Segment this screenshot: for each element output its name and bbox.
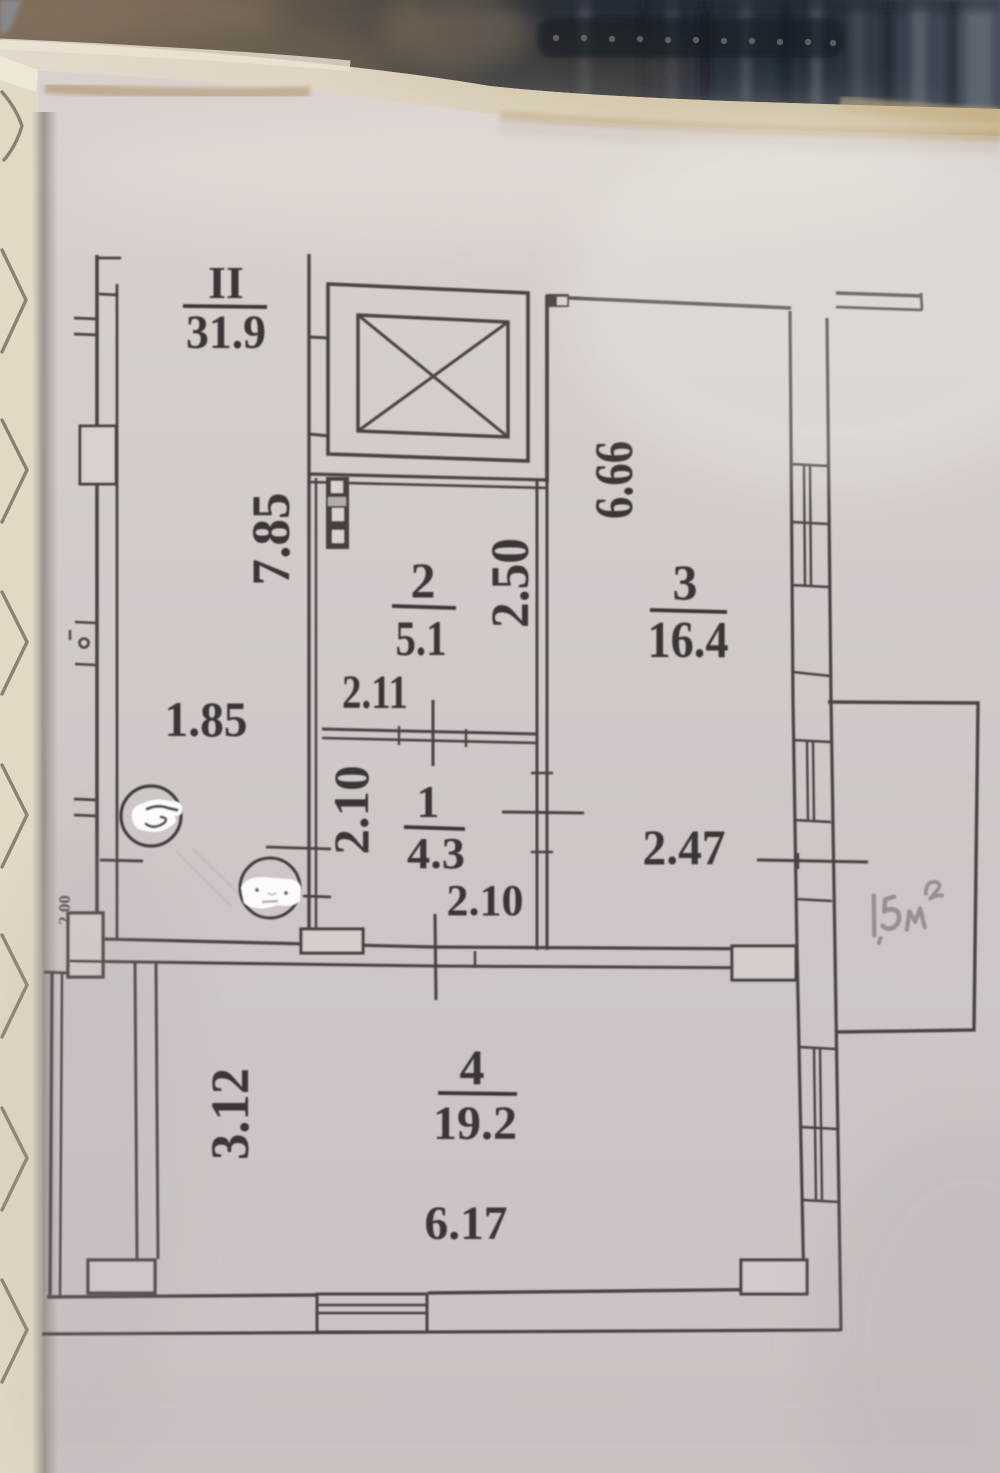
svg-text:2: 2 bbox=[411, 552, 436, 608]
svg-text:16.4: 16.4 bbox=[648, 612, 729, 669]
svg-text:31.9: 31.9 bbox=[186, 306, 266, 359]
svg-text:6.66: 6.66 bbox=[584, 441, 644, 519]
svg-text:3.12: 3.12 bbox=[200, 1068, 260, 1160]
svg-text:1: 1 bbox=[417, 776, 440, 827]
svg-text:6.17: 6.17 bbox=[425, 1197, 508, 1250]
svg-text:5.1: 5.1 bbox=[396, 610, 447, 666]
svg-text:7.85: 7.85 bbox=[241, 493, 301, 586]
svg-text:3: 3 bbox=[673, 554, 698, 610]
svg-text:4: 4 bbox=[460, 1039, 485, 1095]
svg-text:2.50: 2.50 bbox=[480, 538, 540, 628]
svg-text:4.3: 4.3 bbox=[407, 829, 465, 878]
svg-text:2.47: 2.47 bbox=[643, 819, 726, 875]
svg-text:2.10: 2.10 bbox=[447, 876, 524, 925]
svg-text:2.11: 2.11 bbox=[342, 666, 408, 719]
svg-text:2.10: 2.10 bbox=[323, 766, 379, 855]
svg-text:19.2: 19.2 bbox=[433, 1097, 517, 1150]
svg-text:II: II bbox=[208, 257, 244, 308]
svg-text:1.85: 1.85 bbox=[165, 691, 248, 747]
